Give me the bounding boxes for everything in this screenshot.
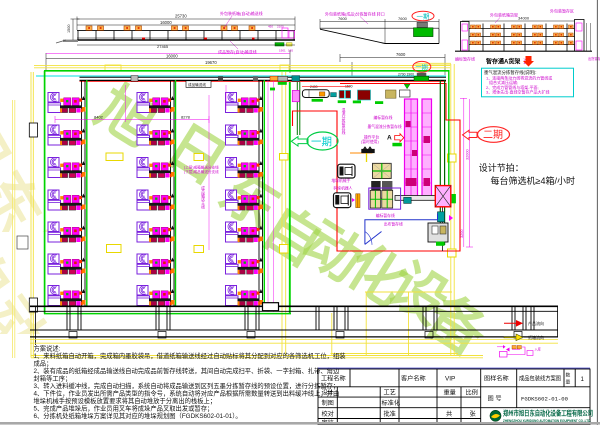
svg-text:封箱等工序；: 封箱等工序； xyxy=(34,374,72,383)
svg-text:1、来料纸箱自动开箱，完成箱内墨胶袋吊，借道纸箱输送线经过自: 1、来料纸箱自动开箱，完成箱内墨胶袋吊，借道纸箱输送线经过自动贴标将其分配到对应… xyxy=(34,351,347,360)
svg-text:图 号: 图 号 xyxy=(488,396,502,403)
svg-text:1500: 1500 xyxy=(67,25,71,33)
svg-text:8402: 8402 xyxy=(94,114,104,119)
svg-text:堆垛机械手: 堆垛机械手 xyxy=(331,178,350,183)
svg-text:1: 1 xyxy=(581,376,585,383)
svg-text:5、完成产品堆垛后，作业员用叉车将成垛产品叉取出发或暂存；: 5、完成产品堆垛后，作业员用叉车将成垛产品叉取出发或暂存； xyxy=(34,404,214,413)
svg-text:入库: 入库 xyxy=(535,347,542,352)
svg-text:校对: 校对 xyxy=(322,410,334,418)
svg-text:8278: 8278 xyxy=(181,114,191,119)
svg-text:成品包装线方案图: 成品包装线方案图 xyxy=(519,375,561,383)
svg-text:4、下件位，作业员发出所需产品类型的指令号，系统自动将对应产: 4、下件位，作业员发出所需产品类型的指令号，系统自动将对应产品根据所需数量转送到… xyxy=(34,389,340,398)
svg-text:19670: 19670 xyxy=(205,60,217,65)
svg-text:25730: 25730 xyxy=(175,14,187,19)
svg-text:外包装纸箱(自动)输送线: 外包装纸箱(自动)输送线 xyxy=(220,10,263,16)
svg-text:外包装纸箱(成品)分拣暂存线 转口: 外包装纸箱(成品)分拣暂存线 转口 xyxy=(325,11,385,17)
svg-text:纸箱流向: 纸箱流向 xyxy=(528,334,544,340)
svg-text:混流分拣暂存线: 混流分拣暂存线 xyxy=(341,107,346,135)
svg-text:一期: 一期 xyxy=(416,63,428,71)
svg-text:制图: 制图 xyxy=(322,399,334,407)
svg-text:图样名称: 图样名称 xyxy=(484,375,509,383)
svg-text:成品输送主线: 成品输送主线 xyxy=(200,185,205,209)
svg-text:数: 数 xyxy=(566,372,571,379)
svg-text:郑州市旭日东自动化设备工程有限公司: 郑州市旭日东自动化设备工程有限公司 xyxy=(503,409,593,418)
svg-text:2、装有成品的纸箱经成品输送线自动完成品前暂存线转送，其间自: 2、装有成品的纸箱经成品输送线自动完成品前暂存线转送，其间自动完成扫平、折袋、一… xyxy=(34,366,340,375)
svg-text:3、塔体先出-直线空暂存产品大扩线: 3、塔体先出-直线空暂存产品大扩线 xyxy=(486,88,550,94)
svg-text:出货暂存区: 出货暂存区 xyxy=(588,56,600,61)
svg-text:16000: 16000 xyxy=(160,20,172,25)
svg-text:工程名称: 工程名称 xyxy=(321,375,346,383)
svg-text:外包装纸箱货架: 外包装纸箱货架 xyxy=(490,12,518,18)
svg-text:VIP: VIP xyxy=(445,376,455,383)
svg-text:二期: 二期 xyxy=(483,129,503,141)
svg-text:设计节拍：: 设计节拍： xyxy=(479,162,524,173)
svg-text:操作平台: 操作平台 xyxy=(364,135,379,140)
svg-text:墨气混流分拣暂存线: 墨气混流分拣暂存线 xyxy=(368,124,402,129)
svg-text:3、转入进料缓冲线，完成自动扫描，系统自动将成品输送到区列五: 3、转入进料缓冲线，完成自动扫描，系统自动将成品输送到区列五墨分拣暂存线的预设位… xyxy=(34,381,340,390)
svg-text:客户名称: 客户名称 xyxy=(401,375,426,383)
svg-text:成品输送线: 成品输送线 xyxy=(188,82,206,87)
svg-text:7600: 7600 xyxy=(398,16,408,21)
svg-text:出布暂存线: 出布暂存线 xyxy=(384,221,403,226)
svg-text:一期: 一期 xyxy=(311,136,332,148)
svg-text:(上层)成箱输送分支线: (上层)成箱输送分支线 xyxy=(184,165,219,170)
svg-text:方案说述:: 方案说述: xyxy=(34,344,61,353)
svg-text:标准化: 标准化 xyxy=(382,399,401,407)
svg-text:张: 张 xyxy=(470,410,477,418)
svg-text:450: 450 xyxy=(268,24,273,28)
svg-text:成品；: 成品； xyxy=(34,359,53,368)
svg-text:设计: 设计 xyxy=(322,389,334,397)
svg-text:34000: 34000 xyxy=(518,16,530,21)
svg-text:2700 1900: 2700 1900 xyxy=(398,72,414,76)
svg-text:6、分拣机处纸箱堆垛方案详见其对应的堆垛规划图（FGDKS6: 6、分拣机处纸箱堆垛方案详见其对应的堆垛规划图（FGDKS602-01-01）。 xyxy=(34,411,242,420)
svg-text:1901: 1901 xyxy=(279,48,286,52)
svg-text:编标暂存线: 编标暂存线 xyxy=(455,55,475,61)
svg-text:32000: 32000 xyxy=(465,149,469,160)
svg-text:16000: 16000 xyxy=(166,53,178,58)
svg-text:智存通A货架: 智存通A货架 xyxy=(486,58,520,66)
svg-text:195: 195 xyxy=(288,48,293,52)
svg-text:码垛机器人: 码垛机器人 xyxy=(334,185,353,190)
svg-text:产品流向: 产品流向 xyxy=(528,320,544,326)
svg-text:堆垛机械手按预设模板放置要求将其自动堆放于分离出的栈板上；: 堆垛机械手按预设模板放置要求将其自动堆放于分离出的栈板上； xyxy=(34,396,217,405)
svg-text:(暂时使用): (暂时使用) xyxy=(361,139,379,144)
svg-text:27465: 27465 xyxy=(157,44,169,49)
svg-text:量: 量 xyxy=(566,379,571,386)
svg-text:7600: 7600 xyxy=(396,52,406,57)
svg-text:编标暂存线: 编标暂存线 xyxy=(374,115,393,120)
svg-text:一期: 一期 xyxy=(417,12,431,20)
svg-text:FGDKS602-01-00: FGDKS602-01-00 xyxy=(521,396,569,403)
svg-text:每台筛选机≥4箱/小时: 每台筛选机≥4箱/小时 xyxy=(491,175,575,186)
svg-text:A: A xyxy=(387,135,392,142)
svg-text:3200: 3200 xyxy=(460,230,464,238)
svg-text:工艺: 工艺 xyxy=(384,389,396,397)
svg-text:7600: 7600 xyxy=(338,16,348,21)
svg-text:批准: 批准 xyxy=(384,410,396,418)
svg-text:比例: 比例 xyxy=(466,389,478,397)
svg-text:2100: 2100 xyxy=(277,24,284,28)
svg-text:编标暂存线: 编标暂存线 xyxy=(376,213,395,218)
svg-text:外包装暂存区: 外包装暂存区 xyxy=(550,8,574,14)
svg-text:共: 共 xyxy=(446,410,452,418)
svg-text:(下层)成品输送分支线: (下层)成品输送分支线 xyxy=(184,169,219,174)
svg-text:重量: 重量 xyxy=(444,389,456,397)
